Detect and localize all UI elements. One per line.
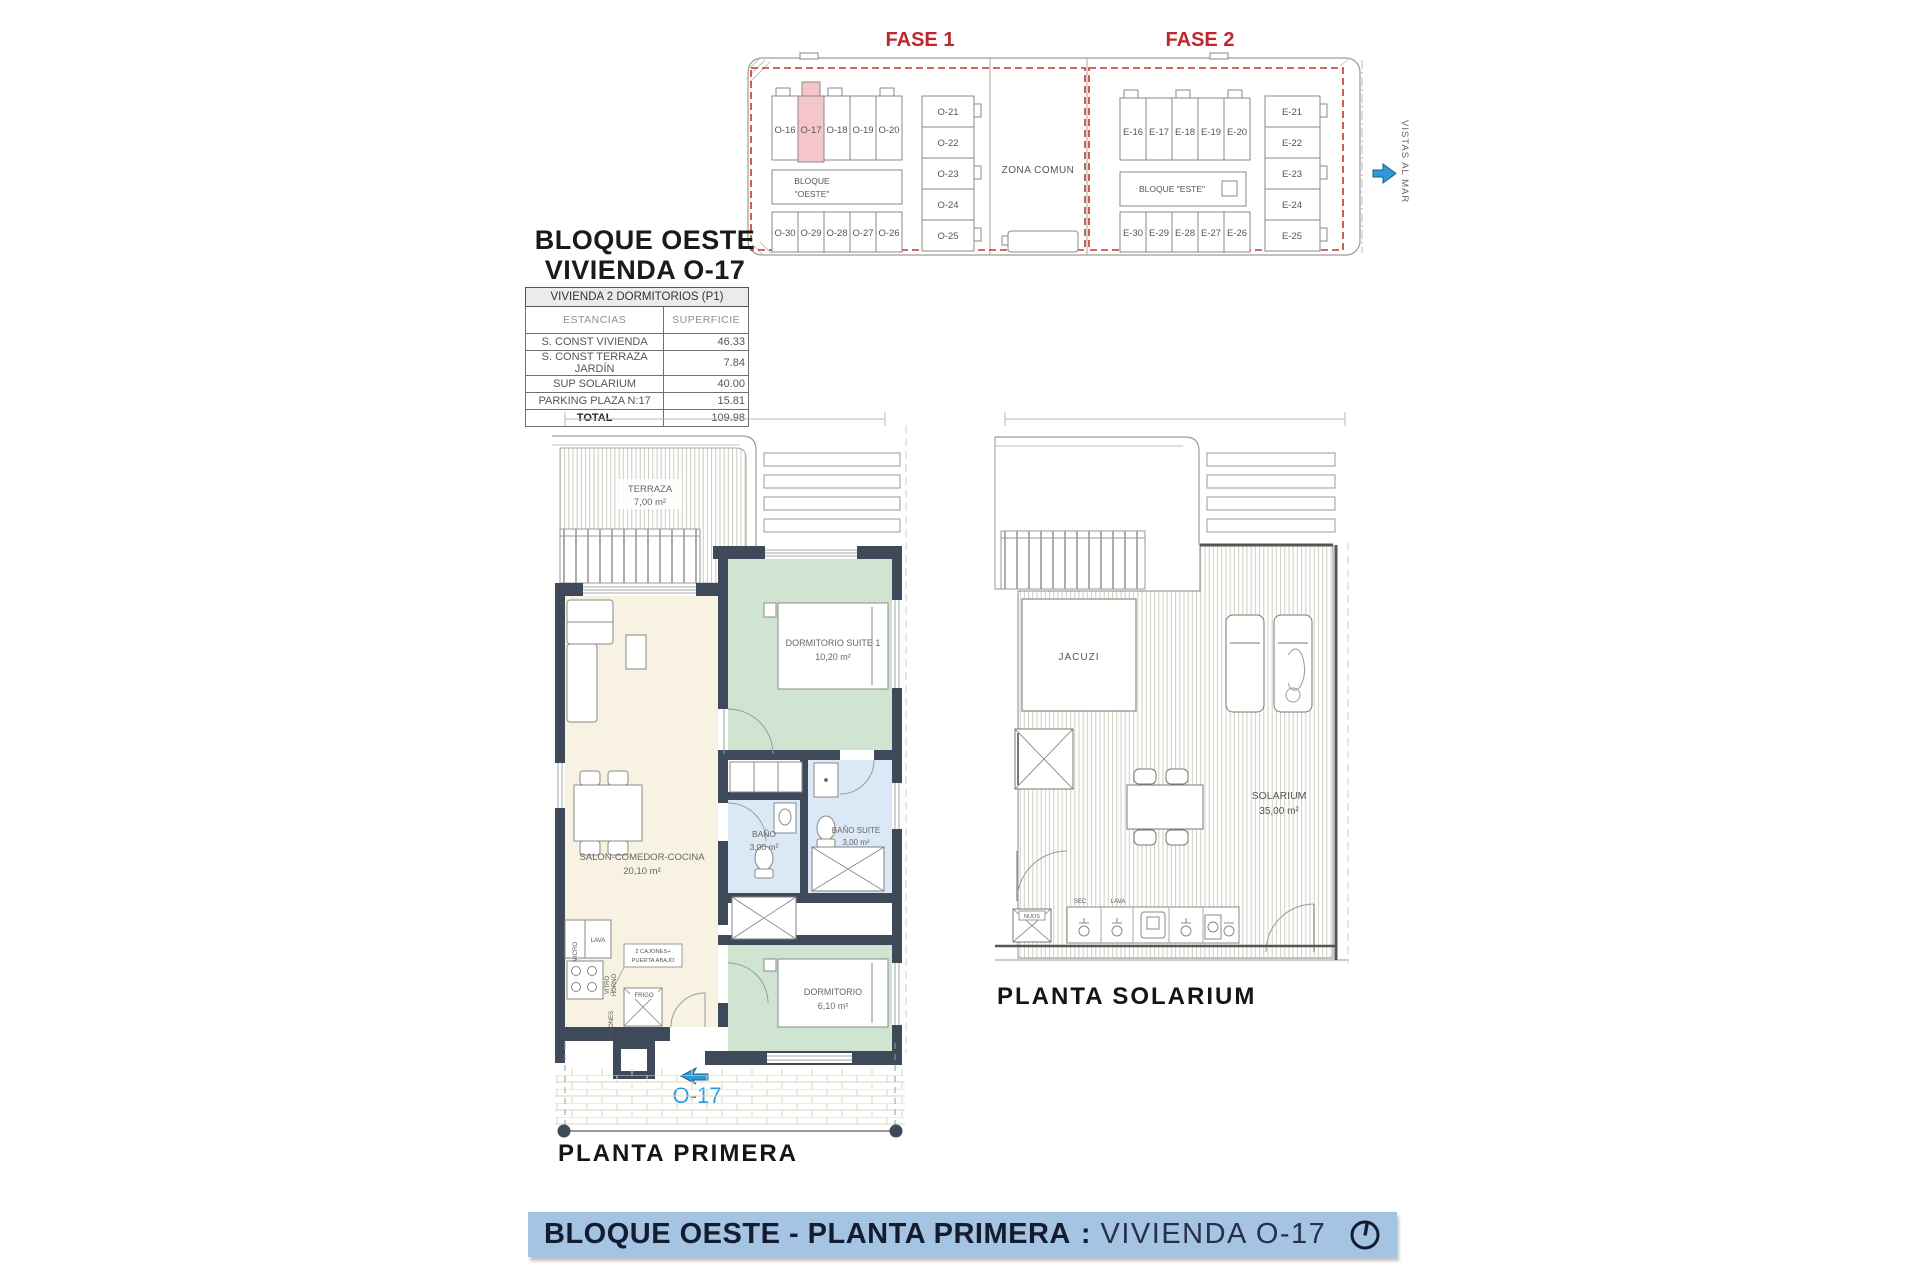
unit-label: O-27 bbox=[852, 228, 873, 239]
row-label: S. CONST VIVIENDA bbox=[526, 334, 664, 351]
pergola-slats bbox=[1207, 453, 1335, 532]
unit-label: E-26 bbox=[1227, 228, 1247, 239]
kitchen-note-line2: PUERTA ABAJO bbox=[632, 958, 675, 964]
terrace-railing bbox=[560, 529, 700, 583]
utility-counter bbox=[1067, 907, 1239, 943]
bano-label: BAÑO bbox=[752, 829, 776, 839]
site-plan: FASE 1 FASE 2 O-16 bbox=[740, 20, 1420, 270]
block-oeste-line1: BLOQUE bbox=[794, 176, 830, 186]
suite-area: 10,20 m² bbox=[815, 652, 851, 662]
brick-path bbox=[555, 1069, 905, 1125]
unit-label: O-29 bbox=[800, 228, 821, 239]
dimension-line bbox=[565, 412, 885, 426]
unit-label: E-28 bbox=[1175, 228, 1195, 239]
unit-label: E-30 bbox=[1123, 228, 1143, 239]
vitro-label: VITRO bbox=[605, 976, 611, 995]
salon-label: SALON-COMEDOR-COCINA bbox=[579, 852, 705, 863]
plan-sheet: FASE 1 FASE 2 O-16 bbox=[0, 0, 1920, 1280]
unit-label: O-20 bbox=[878, 125, 899, 136]
micro-label: MICRO bbox=[573, 942, 579, 962]
table-row: S. CONST VIVIENDA 46.33 bbox=[526, 334, 749, 351]
jacuzzi-label: JACUZI bbox=[1059, 652, 1100, 663]
unit-label: O-21 bbox=[937, 107, 958, 118]
unit-label: O-28 bbox=[826, 228, 847, 239]
table-row: S. CONST TERRAZA JARDÍN 7.84 bbox=[526, 351, 749, 376]
unit-label: O-18 bbox=[826, 125, 847, 136]
fase2-bottom-row-labels: E-30 E-29 E-28 E-27 E-26 bbox=[1123, 228, 1247, 239]
frigo-label: FRIGO bbox=[635, 993, 654, 999]
unit-label: E-24 bbox=[1282, 200, 1302, 211]
dormitorio-label: DORMITORIO bbox=[804, 987, 862, 997]
fase2-top-row-labels: E-16 E-17 E-18 E-19 E-20 bbox=[1123, 127, 1247, 138]
floor-plan-planta-primera: TERRAZA 7,00 m² bbox=[550, 403, 910, 1165]
table-row: SUP SOLARIUM 40.00 bbox=[526, 376, 749, 393]
row-value: 7.84 bbox=[664, 351, 749, 376]
roof-outline bbox=[995, 437, 1199, 545]
unit-label: O-22 bbox=[937, 138, 958, 149]
title-banner: BLOQUE OESTE - PLANTA PRIMERA : VIVIENDA… bbox=[528, 1212, 1397, 1257]
row-label: SUP SOLARIUM bbox=[526, 376, 664, 393]
nuos-label: NUOS bbox=[1024, 914, 1040, 920]
banner-bold-text: BLOQUE OESTE - PLANTA PRIMERA bbox=[544, 1218, 1071, 1251]
sec-label: SEC bbox=[1074, 899, 1087, 905]
kitchen-note-line1: 2 CAJONES+ bbox=[635, 949, 671, 955]
floor-plan-planta-solarium: JACUZI SOLARIUM 35,00 m² bbox=[993, 403, 1365, 999]
sheet-title-line1: BLOQUE OESTE bbox=[505, 226, 785, 256]
banner-regular-text: VIVIENDA O-17 bbox=[1101, 1218, 1327, 1251]
fase1-top-row-labels: O-16 O-17 O-18 O-19 O-20 bbox=[774, 125, 899, 136]
dormitorio-area: 6,10 m² bbox=[818, 1001, 849, 1011]
unit-label: E-21 bbox=[1282, 107, 1302, 118]
dimension-line bbox=[1005, 412, 1345, 426]
planta-solarium-caption: PLANTA SOLARIUM bbox=[997, 983, 1256, 1011]
banner-separator: : bbox=[1081, 1218, 1091, 1251]
fase1-top-row bbox=[772, 82, 902, 162]
unit-label: E-29 bbox=[1149, 228, 1169, 239]
terraza-area: 7,00 m² bbox=[634, 497, 666, 508]
unit-label: E-17 bbox=[1149, 127, 1169, 138]
solarium-label: SOLARIUM bbox=[1252, 790, 1307, 802]
unit-label: E-19 bbox=[1201, 127, 1221, 138]
pergola-slats bbox=[764, 453, 900, 532]
col-header-superficie: SUPERFICIE bbox=[664, 307, 749, 334]
bano-area: 3,00 m² bbox=[750, 842, 779, 852]
unit-label: O-17 bbox=[800, 125, 821, 136]
unit-label: O-26 bbox=[878, 228, 899, 239]
lava-label: LAVA bbox=[1111, 899, 1125, 905]
north-compass-icon bbox=[1347, 1217, 1383, 1253]
col-header-estancias: ESTANCIAS bbox=[526, 307, 664, 334]
block-este-label: BLOQUE "ESTE" bbox=[1139, 184, 1205, 194]
unit-label: O-25 bbox=[937, 231, 958, 242]
terraza-label: TERRAZA bbox=[628, 484, 673, 495]
planta-primera-caption: PLANTA PRIMERA bbox=[558, 1140, 798, 1168]
block-oeste-line2: "OESTE" bbox=[795, 189, 830, 199]
sea-direction-arrow-icon bbox=[1373, 164, 1396, 183]
terrace-railing bbox=[1001, 531, 1145, 589]
unit-label: E-18 bbox=[1175, 127, 1195, 138]
unit-label: E-27 bbox=[1201, 228, 1221, 239]
pool-shape bbox=[1002, 231, 1078, 252]
fase1-title: FASE 1 bbox=[886, 29, 955, 51]
row-label: S. CONST TERRAZA JARDÍN bbox=[526, 351, 664, 376]
sheet-title-line2: VIVIENDA O-17 bbox=[505, 256, 785, 286]
fase2-top-row bbox=[1120, 90, 1250, 160]
unit-label: E-25 bbox=[1282, 231, 1302, 242]
porch-column bbox=[621, 1049, 647, 1071]
row-value: 40.00 bbox=[664, 376, 749, 393]
cajones-label: CAJONES bbox=[609, 1011, 615, 1039]
outdoor-shower bbox=[1015, 729, 1073, 789]
bano-suite-label: BAÑO SUITE bbox=[832, 826, 880, 835]
wardrobe bbox=[730, 762, 802, 792]
unit-label: E-16 bbox=[1123, 127, 1143, 138]
unit-label: O-19 bbox=[852, 125, 873, 136]
surface-table-header: VIVIENDA 2 DORMITORIOS (P1) bbox=[526, 288, 749, 307]
solarium-area: 35,00 m² bbox=[1259, 806, 1299, 817]
row-value: 46.33 bbox=[664, 334, 749, 351]
unit-label: E-23 bbox=[1282, 169, 1302, 180]
fase2-title: FASE 2 bbox=[1166, 29, 1235, 51]
suite-label: DORMITORIO SUITE 1 bbox=[786, 638, 881, 648]
block-este-square bbox=[1222, 181, 1237, 196]
bano-suite-area: 3,00 m² bbox=[842, 838, 869, 847]
unit-label: O-23 bbox=[937, 169, 958, 180]
fase1-corridor bbox=[772, 170, 902, 204]
salon-area: 20,10 m² bbox=[623, 866, 661, 877]
zona-comun-label: ZONA COMUN bbox=[1002, 165, 1075, 176]
unit-label: O-16 bbox=[774, 125, 795, 136]
unit-label: E-22 bbox=[1282, 138, 1302, 149]
unit-label: O-24 bbox=[937, 200, 958, 211]
fase1-bottom-row-labels: O-30 O-29 O-28 O-27 O-26 bbox=[774, 228, 899, 239]
horno-label: HORNO bbox=[612, 974, 618, 997]
sheet-title: BLOQUE OESTE VIVIENDA O-17 bbox=[505, 226, 785, 285]
unit-label: E-20 bbox=[1227, 127, 1247, 138]
lava-label: LAVA bbox=[591, 938, 605, 944]
vistas-al-mar-label: VISTAS AL MAR bbox=[1399, 120, 1410, 203]
